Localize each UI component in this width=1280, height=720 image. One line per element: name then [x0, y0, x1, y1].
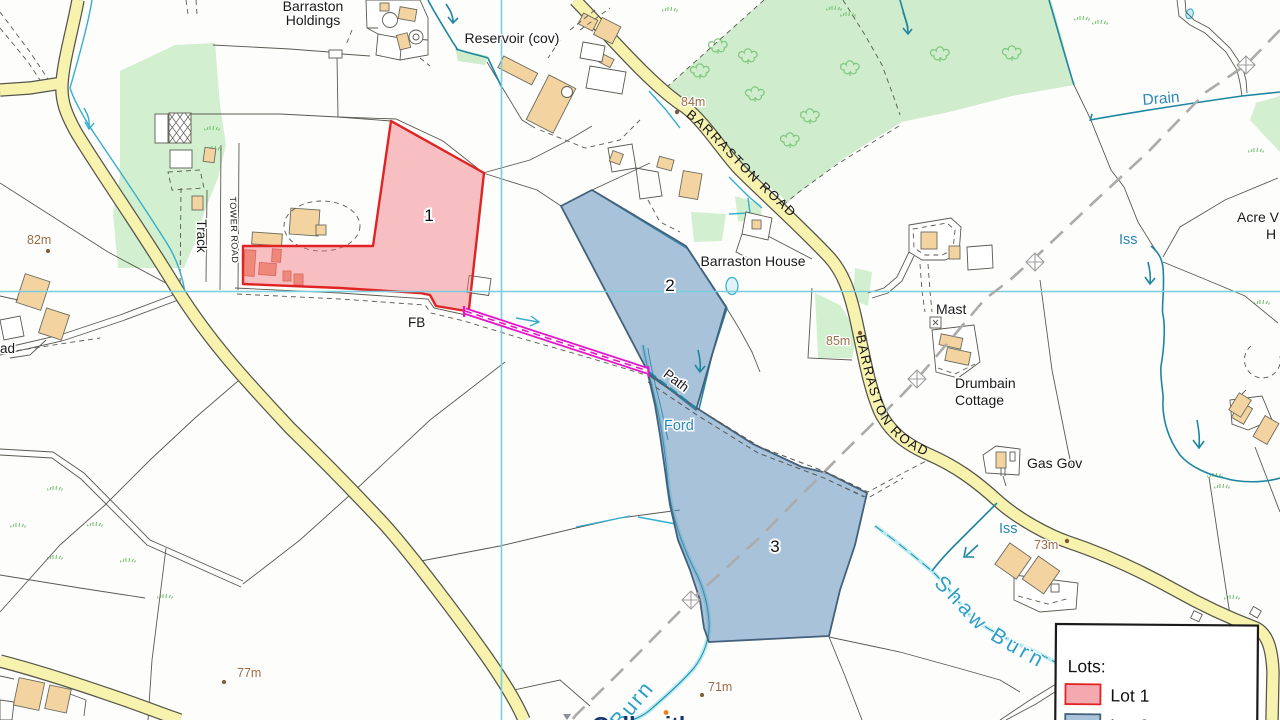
svg-text:Cottage: Cottage — [955, 392, 1004, 408]
svg-text:82m: 82m — [27, 233, 51, 247]
svg-text:Galbraith: Galbraith — [592, 712, 693, 720]
svg-text:Mast: Mast — [936, 301, 966, 317]
svg-text:85m: 85m — [826, 334, 850, 348]
svg-text:77m: 77m — [237, 666, 261, 680]
svg-text:Track: Track — [194, 219, 209, 252]
svg-text:Drain: Drain — [1142, 89, 1180, 109]
svg-text:Ford: Ford — [664, 418, 694, 434]
svg-text:3: 3 — [770, 537, 779, 556]
svg-text:84m: 84m — [681, 95, 705, 109]
svg-text:Holdings: Holdings — [286, 12, 340, 28]
svg-text:ad: ad — [0, 341, 15, 356]
svg-text:Lot 2: Lot 2 — [1110, 715, 1149, 720]
svg-text:Acre V: Acre V — [1237, 209, 1280, 225]
svg-text:Lots:: Lots: — [1068, 656, 1106, 676]
svg-text:Barraston House: Barraston House — [700, 253, 805, 269]
svg-text:Reservoir (cov): Reservoir (cov) — [465, 30, 560, 46]
svg-text:H: H — [1266, 226, 1276, 242]
svg-text:Gas Gov: Gas Gov — [1027, 455, 1082, 471]
svg-text:2: 2 — [665, 276, 674, 295]
svg-text:Iss: Iss — [1119, 232, 1138, 248]
svg-text:Iss: Iss — [999, 521, 1018, 537]
svg-text:73m: 73m — [1034, 538, 1058, 552]
svg-text:FB: FB — [408, 315, 425, 330]
svg-text:Drumbain: Drumbain — [955, 375, 1016, 391]
svg-text:1: 1 — [424, 206, 433, 225]
svg-text:71m: 71m — [708, 680, 732, 694]
svg-text:Lot 1: Lot 1 — [1110, 685, 1149, 705]
